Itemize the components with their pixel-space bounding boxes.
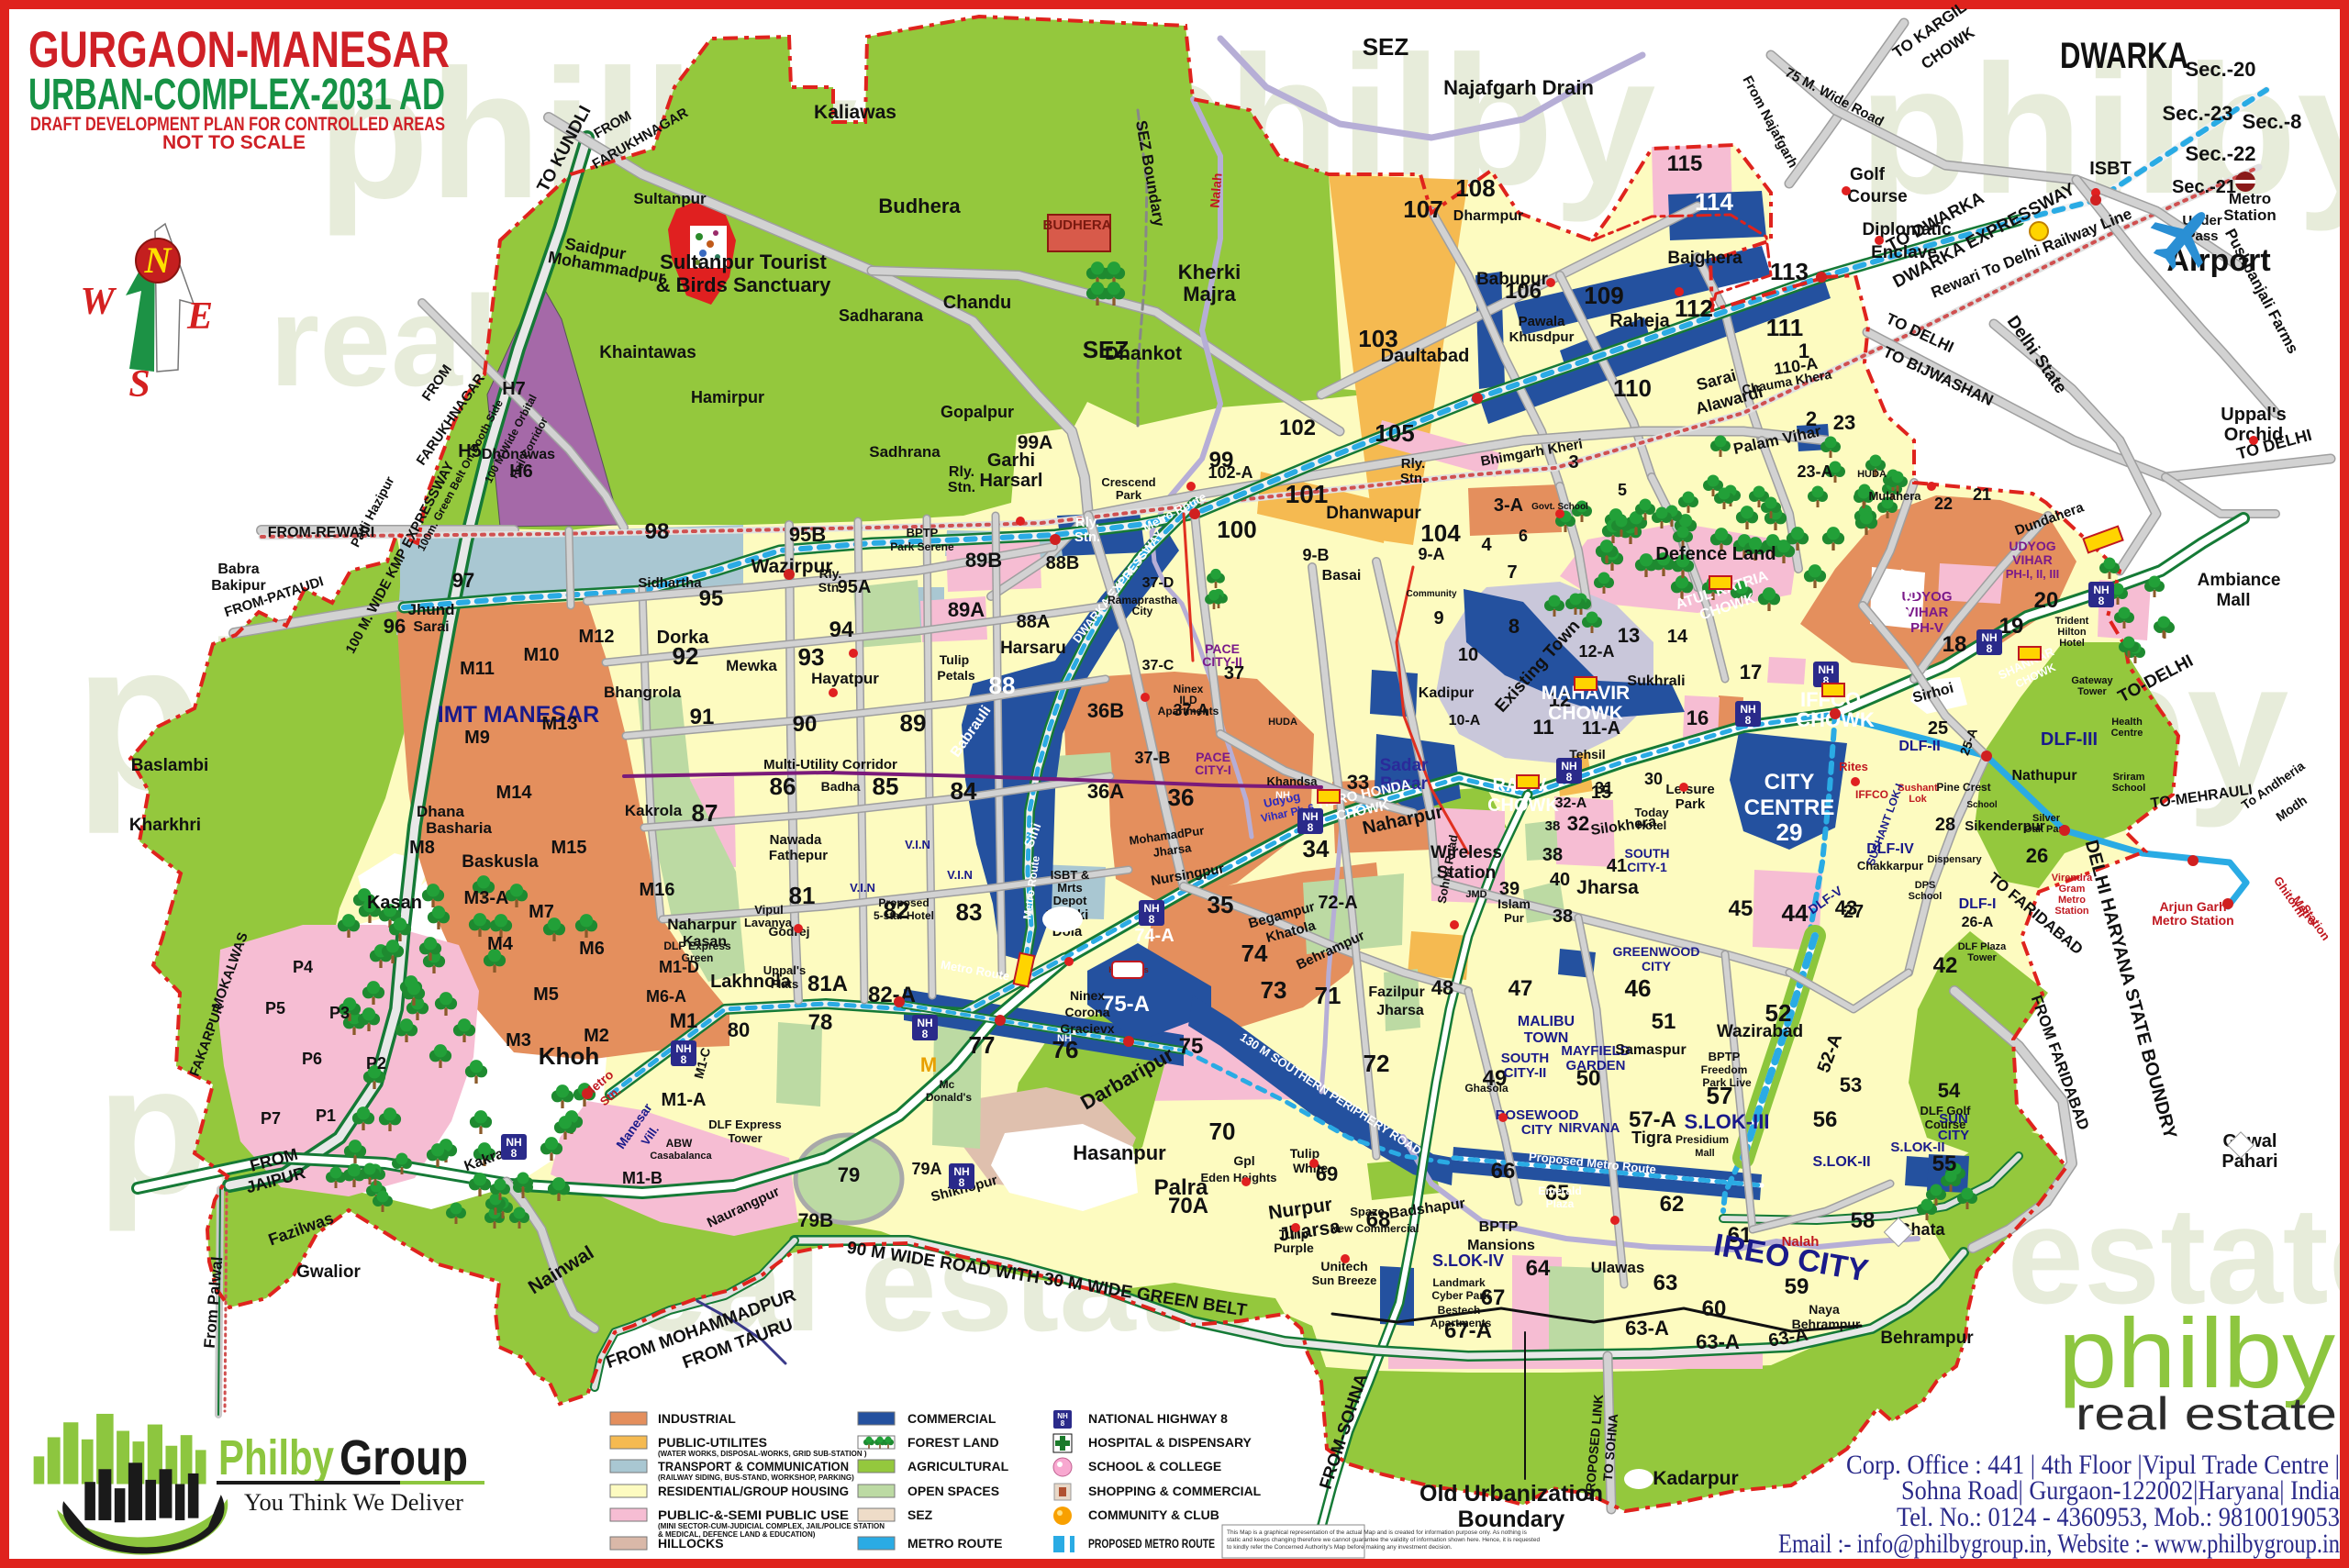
svg-text:SHOPPING & COMMERCIAL: SHOPPING & COMMERCIAL	[1088, 1484, 1262, 1498]
svg-text:58: 58	[1851, 1208, 1876, 1233]
svg-text:29: 29	[1776, 818, 1803, 846]
svg-text:CITY-1: CITY-1	[1627, 860, 1667, 874]
svg-text:M14: M14	[496, 783, 533, 803]
svg-text:57-A: 57-A	[1629, 1107, 1676, 1132]
svg-text:10: 10	[1458, 645, 1478, 665]
svg-text:1: 1	[1798, 339, 1809, 362]
svg-text:Plaza: Plaza	[1546, 1197, 1575, 1210]
svg-text:Sec.-21: Sec.-21	[2172, 177, 2236, 197]
svg-text:AGRICULTURAL: AGRICULTURAL	[907, 1459, 1009, 1473]
svg-text:Virendra: Virendra	[2052, 873, 2093, 884]
svg-text:You Think We Deliver: You Think We Deliver	[244, 1489, 463, 1516]
svg-text:51: 51	[1652, 1009, 1676, 1034]
svg-text:Multi-Utility Corridor: Multi-Utility Corridor	[763, 757, 897, 773]
svg-text:PROPOSED METRO ROUTE: PROPOSED METRO ROUTE	[1088, 1536, 1215, 1551]
svg-text:Old Urbanization: Old Urbanization	[1419, 1481, 1603, 1507]
svg-text:Raheja: Raheja	[1609, 311, 1670, 331]
svg-text:M8: M8	[409, 838, 435, 858]
svg-text:67-A: 67-A	[1444, 1318, 1492, 1343]
svg-text:6: 6	[1519, 527, 1528, 545]
svg-text:SEZ: SEZ	[1363, 33, 1409, 61]
svg-text:Leisure: Leisure	[1665, 782, 1714, 797]
svg-text:8: 8	[1061, 1419, 1065, 1428]
svg-text:real estate: real estate	[2076, 1388, 2337, 1440]
svg-text:Petals: Petals	[937, 668, 974, 683]
svg-text:Gateway: Gateway	[2071, 675, 2113, 686]
svg-text:HUDA: HUDA	[1268, 717, 1297, 728]
svg-text:31: 31	[1595, 779, 1613, 797]
svg-text:38: 38	[1553, 906, 1573, 927]
svg-text:42: 42	[1933, 953, 1958, 978]
svg-text:M3-A: M3-A	[464, 888, 509, 908]
svg-text:N: N	[144, 239, 173, 281]
svg-text:60: 60	[1702, 1296, 1727, 1321]
svg-text:8: 8	[959, 1176, 965, 1189]
svg-text:BPTP: BPTP	[1709, 1050, 1741, 1063]
svg-text:38: 38	[1545, 818, 1561, 834]
svg-text:46: 46	[1625, 974, 1652, 1002]
svg-text:84: 84	[951, 777, 977, 805]
svg-text:PUBLIC-UTILITES: PUBLIC-UTILITES	[658, 1435, 767, 1450]
svg-text:9-A: 9-A	[1418, 545, 1444, 563]
svg-text:Community: Community	[1407, 589, 1457, 599]
svg-text:NIRVANA: NIRVANA	[1559, 1120, 1620, 1136]
svg-text:85: 85	[873, 773, 899, 800]
svg-text:ABW: ABW	[666, 1137, 693, 1150]
svg-text:71: 71	[1315, 982, 1341, 1009]
svg-text:8: 8	[681, 1053, 687, 1066]
svg-text:37-D: 37-D	[1142, 575, 1174, 591]
svg-text:Harsarl: Harsarl	[980, 471, 1043, 491]
svg-text:INDUSTRIAL: INDUSTRIAL	[658, 1411, 736, 1426]
svg-text:Baskusla: Baskusla	[462, 852, 539, 872]
svg-text:Nawada: Nawada	[770, 832, 822, 848]
svg-text:M1: M1	[670, 1009, 698, 1032]
svg-text:55: 55	[1932, 1151, 1957, 1176]
svg-text:Gwalior: Gwalior	[296, 1262, 361, 1282]
svg-text:45: 45	[1729, 896, 1753, 921]
svg-text:30: 30	[1644, 770, 1663, 788]
svg-text:Badha: Badha	[821, 779, 861, 794]
svg-text:8: 8	[1508, 615, 1520, 638]
svg-text:8: 8	[1308, 821, 1314, 834]
svg-text:Depot: Depot	[1053, 894, 1088, 907]
svg-text:59: 59	[1785, 1274, 1809, 1299]
svg-text:M4: M4	[487, 934, 514, 954]
svg-text:NOT TO SCALE: NOT TO SCALE	[162, 132, 306, 153]
svg-text:16: 16	[1687, 706, 1709, 729]
svg-text:HUDA: HUDA	[1857, 469, 1887, 480]
svg-text:52: 52	[1765, 999, 1792, 1027]
svg-text:Landmark: Landmark	[1432, 1276, 1486, 1289]
svg-text:COMMUNITY & CLUB: COMMUNITY & CLUB	[1088, 1507, 1219, 1522]
svg-text:Station: Station	[2054, 906, 2089, 917]
svg-text:V.I.N: V.I.N	[905, 838, 930, 851]
svg-text:47: 47	[1508, 976, 1533, 1001]
svg-text:33: 33	[1347, 771, 1369, 794]
svg-text:M2: M2	[584, 1026, 609, 1046]
svg-text:19: 19	[1999, 614, 2024, 639]
svg-text:(MINI SECTOR-CUM-JUDICIAL COMP: (MINI SECTOR-CUM-JUDICIAL COMPLEX, JAIL/…	[658, 1522, 885, 1530]
svg-text:Golf: Golf	[1850, 165, 1886, 184]
svg-text:108: 108	[1455, 174, 1495, 202]
svg-text:Sukhrali: Sukhrali	[1627, 673, 1685, 689]
svg-text:8: 8	[1987, 642, 1993, 655]
svg-text:89B: 89B	[965, 549, 1002, 572]
svg-text:Dhana: Dhana	[417, 803, 465, 820]
svg-text:Wireless: Wireless	[1431, 843, 1502, 862]
svg-text:DLF Express: DLF Express	[708, 1118, 781, 1131]
svg-text:Ninex: Ninex	[1070, 988, 1105, 1003]
svg-text:Garhi: Garhi	[987, 450, 1035, 471]
svg-text:BUDHERA: BUDHERA	[1043, 217, 1112, 233]
svg-text:Sadhrana: Sadhrana	[869, 443, 941, 461]
svg-text:NH: NH	[1057, 1033, 1072, 1044]
svg-text:Rly.: Rly.	[1075, 515, 1099, 530]
svg-text:M1-B: M1-B	[622, 1169, 662, 1187]
svg-text:Stn.: Stn.	[818, 580, 842, 595]
svg-text:8: 8	[1745, 714, 1752, 727]
svg-text:Group: Group	[340, 1430, 468, 1485]
svg-text:Sriram: Sriram	[2113, 772, 2145, 783]
svg-text:SEZ: SEZ	[907, 1507, 933, 1522]
svg-text:Majra: Majra	[1183, 283, 1236, 306]
svg-text:Dispensary: Dispensary	[1927, 854, 1982, 865]
svg-text:98: 98	[645, 519, 670, 544]
svg-text:Tulip: Tulip	[1290, 1146, 1319, 1161]
svg-text:CITY: CITY	[1765, 770, 1815, 795]
svg-text:P3: P3	[329, 1004, 350, 1022]
svg-text:PH-I, II, III: PH-I, II, III	[2006, 567, 2060, 581]
svg-text:Rly.: Rly.	[819, 566, 842, 581]
svg-text:Park: Park	[1116, 488, 1142, 502]
svg-text:8: 8	[922, 1028, 929, 1040]
svg-text:Mall: Mall	[1695, 1148, 1714, 1159]
svg-text:Sadar: Sadar	[1380, 756, 1429, 775]
svg-text:Mewka: Mewka	[726, 657, 777, 674]
svg-text:68: 68	[1366, 1207, 1391, 1232]
svg-text:CITY-II: CITY-II	[1202, 654, 1242, 669]
svg-text:Course: Course	[1925, 1118, 1966, 1131]
svg-text:Tower: Tower	[2077, 686, 2107, 697]
svg-text:CITY: CITY	[1521, 1122, 1553, 1138]
svg-text:101: 101	[1286, 480, 1329, 508]
svg-text:Nalah: Nalah	[1207, 172, 1224, 208]
svg-text:P5: P5	[265, 999, 285, 1018]
svg-text:3: 3	[1568, 452, 1578, 473]
svg-text:28: 28	[1935, 815, 1955, 835]
svg-text:Bestech: Bestech	[1438, 1304, 1481, 1317]
svg-text:IFFCO: IFFCO	[1855, 788, 1888, 801]
svg-text:44: 44	[1782, 899, 1809, 927]
svg-text:8: 8	[1149, 913, 1155, 926]
svg-text:Pahari: Pahari	[2221, 1151, 2277, 1172]
svg-text:Tulip: Tulip	[940, 652, 969, 667]
svg-text:CENTRE: CENTRE	[1744, 795, 1835, 820]
svg-text:Ulawas: Ulawas	[1591, 1259, 1645, 1276]
svg-text:CITY: CITY	[1642, 959, 1672, 973]
svg-text:Kherki: Kherki	[1178, 261, 1241, 284]
svg-text:Stn.: Stn.	[1074, 529, 1100, 545]
svg-text:Hasanpur: Hasanpur	[1073, 1141, 1166, 1164]
svg-text:53: 53	[1840, 1073, 1862, 1096]
svg-text:20: 20	[2034, 588, 2059, 613]
svg-text:Silver: Silver	[2032, 813, 2061, 824]
svg-text:23: 23	[1833, 411, 1855, 434]
svg-text:RESIDENTIAL/GROUP HOUSING: RESIDENTIAL/GROUP HOUSING	[658, 1484, 849, 1498]
svg-text:BPTP: BPTP	[907, 526, 939, 539]
svg-text:Fathepur: Fathepur	[769, 848, 828, 863]
svg-text:27: 27	[1843, 902, 1864, 922]
svg-text:102-A: 102-A	[1208, 463, 1252, 482]
svg-text:8: 8	[511, 1147, 518, 1160]
svg-text:80: 80	[728, 1018, 750, 1041]
svg-text:COMMERCIAL: COMMERCIAL	[907, 1411, 996, 1426]
svg-text:110: 110	[1613, 374, 1652, 402]
svg-text:83: 83	[956, 898, 983, 926]
svg-text:S.LOK-II: S.LOK-II	[1812, 1154, 1870, 1170]
svg-text:METRO ROUTE: METRO ROUTE	[907, 1536, 1002, 1551]
svg-text:Kasan: Kasan	[683, 934, 727, 950]
svg-text:Tower: Tower	[1967, 952, 1997, 963]
svg-text:CITY-II: CITY-II	[1504, 1065, 1547, 1081]
svg-text:Kadarpur: Kadarpur	[1653, 1468, 1738, 1489]
svg-text:74: 74	[1241, 940, 1268, 967]
svg-text:Babupur: Babupur	[1476, 270, 1549, 289]
svg-text:Sultanpur Tourist: Sultanpur Tourist	[660, 250, 827, 273]
svg-text:50: 50	[1576, 1066, 1601, 1091]
svg-text:Apartments: Apartments	[1158, 705, 1219, 717]
svg-text:37-B: 37-B	[1134, 749, 1170, 767]
svg-text:P2: P2	[366, 1054, 386, 1073]
svg-text:UDYOG: UDYOG	[2009, 539, 2055, 553]
svg-text:79: 79	[838, 1163, 860, 1186]
svg-text:73: 73	[1261, 976, 1287, 1004]
svg-text:113: 113	[1770, 258, 1809, 285]
svg-text:21: 21	[1973, 485, 1991, 504]
svg-text:This Map is a graphical repres: This Map is a graphical representation o…	[1227, 1529, 1528, 1536]
svg-text:Nalah: Nalah	[1782, 1234, 1820, 1250]
svg-text:Presidium: Presidium	[1675, 1133, 1729, 1146]
svg-text:Pur: Pur	[1504, 911, 1524, 925]
svg-text:35: 35	[1208, 891, 1234, 918]
svg-text:36B: 36B	[1087, 699, 1124, 722]
svg-text:Boundary: Boundary	[1458, 1507, 1565, 1532]
svg-text:M12: M12	[579, 627, 615, 647]
svg-text:P7: P7	[261, 1109, 281, 1128]
svg-text:Emerald: Emerald	[1538, 1184, 1581, 1197]
svg-text:Hilton: Hilton	[2057, 627, 2086, 638]
svg-text:Khandsa: Khandsa	[1267, 774, 1319, 788]
svg-text:Jharsa: Jharsa	[1376, 1003, 1424, 1018]
svg-text:Bakipur: Bakipur	[211, 578, 266, 594]
svg-text:Rly.: Rly.	[1401, 456, 1425, 472]
svg-text:DLF-III: DLF-III	[2041, 729, 2098, 750]
svg-text:36: 36	[1168, 784, 1195, 811]
svg-text:56: 56	[1813, 1107, 1838, 1132]
svg-text:Sultanpur: Sultanpur	[633, 190, 707, 207]
svg-text:Khaintawas: Khaintawas	[599, 343, 696, 362]
svg-text:M3: M3	[506, 1030, 531, 1051]
svg-text:Crescend: Crescend	[1101, 475, 1155, 489]
svg-text:Lok: Lok	[1909, 794, 1927, 805]
svg-text:M13: M13	[542, 714, 578, 734]
svg-text:Freedom: Freedom	[1701, 1063, 1748, 1076]
svg-text:CHOWK: CHOWK	[1487, 795, 1559, 816]
svg-text:M1-A: M1-A	[662, 1090, 707, 1110]
svg-text:& Birds Sanctuary: & Birds Sanctuary	[656, 273, 831, 296]
svg-text:70: 70	[1209, 1118, 1236, 1145]
svg-text:JMD: JMD	[1465, 889, 1486, 900]
svg-text:114: 114	[1695, 188, 1733, 216]
svg-text:107: 107	[1403, 195, 1442, 223]
svg-text:Kaliawas: Kaliawas	[814, 102, 896, 123]
svg-text:M: M	[920, 1053, 937, 1076]
svg-text:Fazilpur: Fazilpur	[1368, 984, 1424, 1000]
svg-text:Sec.-22: Sec.-22	[2185, 142, 2255, 165]
svg-text:BPTP: BPTP	[1479, 1219, 1519, 1235]
svg-text:H6: H6	[509, 462, 533, 482]
svg-text:Casabalanca: Casabalanca	[650, 1151, 712, 1162]
svg-text:Eden Heights: Eden Heights	[1200, 1171, 1276, 1184]
svg-text:M10: M10	[524, 645, 560, 665]
svg-text:GURGAON-MANESAR: GURGAON-MANESAR	[28, 20, 450, 78]
svg-text:64: 64	[1526, 1256, 1551, 1281]
svg-text:SOUTH: SOUTH	[1501, 1051, 1550, 1066]
svg-text:Khusdpur: Khusdpur	[1509, 329, 1575, 345]
svg-text:Naharpur: Naharpur	[667, 916, 737, 933]
svg-text:Metro: Metro	[2058, 895, 2086, 906]
svg-text:112: 112	[1675, 295, 1713, 322]
svg-text:9-B: 9-B	[1302, 546, 1329, 564]
svg-text:93: 93	[798, 643, 825, 671]
svg-text:P4: P4	[293, 958, 313, 976]
svg-text:DLF Plaza: DLF Plaza	[1958, 941, 2007, 952]
svg-text:72: 72	[1364, 1050, 1390, 1077]
svg-text:P6: P6	[302, 1050, 322, 1068]
svg-text:12-A: 12-A	[1578, 642, 1614, 661]
svg-text:88A: 88A	[1017, 612, 1051, 632]
svg-text:Course: Course	[1847, 187, 1907, 206]
svg-text:Baslambi: Baslambi	[131, 756, 208, 775]
svg-text:Sec.-8: Sec.-8	[2243, 110, 2302, 133]
svg-text:Corona: Corona	[1065, 1005, 1110, 1019]
svg-text:Philby: Philby	[218, 1430, 334, 1485]
svg-text:Lakhnola: Lakhnola	[710, 972, 792, 992]
svg-text:Uppal's: Uppal's	[2221, 405, 2286, 425]
svg-text:96: 96	[384, 615, 406, 638]
svg-text:H5: H5	[458, 441, 482, 462]
svg-text:111: 111	[1766, 314, 1804, 341]
svg-text:E: E	[186, 295, 213, 338]
svg-text:91: 91	[690, 705, 715, 729]
svg-text:Islam: Islam	[1497, 896, 1531, 911]
svg-text:82: 82	[884, 896, 910, 924]
svg-text:88B: 88B	[1046, 553, 1080, 573]
svg-text:S.LOK-III: S.LOK-III	[1685, 1110, 1770, 1133]
svg-text:Rites: Rites	[1839, 760, 1868, 773]
svg-text:Mrts: Mrts	[1057, 881, 1082, 895]
svg-text:36A: 36A	[1087, 780, 1124, 803]
svg-text:Hayatpur: Hayatpur	[811, 670, 879, 687]
svg-text:Kakrola: Kakrola	[625, 802, 683, 819]
svg-text:Dhanwapur: Dhanwapur	[1326, 504, 1421, 523]
svg-text:Centre: Centre	[2111, 728, 2143, 739]
svg-text:Station: Station	[2223, 206, 2277, 224]
svg-text:City: City	[1132, 605, 1153, 617]
svg-text:Sec.-23: Sec.-23	[2162, 102, 2232, 125]
svg-text:8: 8	[2099, 595, 2105, 607]
svg-text:H7: H7	[502, 379, 526, 399]
svg-text:105: 105	[1375, 419, 1414, 447]
svg-text:Sadharana: Sadharana	[839, 306, 924, 325]
svg-text:S.LOK-IV: S.LOK-IV	[1432, 1251, 1504, 1270]
svg-text:63-A: 63-A	[1625, 1317, 1669, 1340]
svg-text:Pine Crest: Pine Crest	[1936, 781, 1990, 794]
svg-text:CHOWK: CHOWK	[1548, 703, 1623, 724]
svg-text:DLF Golf: DLF Golf	[1920, 1104, 1972, 1118]
svg-text:TRANSPORT & COMMUNICATION: TRANSPORT & COMMUNICATION	[658, 1459, 849, 1473]
svg-text:M7: M7	[529, 902, 554, 922]
svg-text:7: 7	[1507, 562, 1517, 583]
svg-text:Samaspur: Samaspur	[1615, 1042, 1686, 1058]
svg-text:Tower: Tower	[728, 1131, 762, 1145]
svg-text:79B: 79B	[798, 1210, 834, 1231]
svg-text:Budhera: Budhera	[878, 195, 961, 217]
svg-text:Basharia: Basharia	[426, 819, 492, 837]
svg-text:MALIBU: MALIBU	[1518, 1014, 1575, 1029]
svg-text:M15: M15	[551, 838, 587, 858]
svg-text:79A: 79A	[911, 1160, 941, 1178]
svg-text:Sec.-20: Sec.-20	[2185, 58, 2255, 81]
svg-text:100: 100	[1217, 516, 1256, 543]
svg-text:Khoh: Khoh	[539, 1042, 599, 1070]
svg-text:Gram: Gram	[2059, 884, 2086, 895]
svg-text:67: 67	[1481, 1285, 1506, 1310]
svg-text:Vipul: Vipul	[754, 903, 784, 917]
svg-text:Metro Station: Metro Station	[2152, 913, 2233, 928]
svg-text:SCHOOL & COLLEGE: SCHOOL & COLLEGE	[1088, 1459, 1221, 1473]
svg-text:static and keeps changing ther: static and keeps changing therefore we c…	[1227, 1537, 1540, 1543]
svg-text:& MEDICAL, DEFENCE LAND & EDUC: & MEDICAL, DEFENCE LAND & EDUCATION)	[658, 1530, 816, 1539]
svg-text:25: 25	[1928, 718, 1948, 739]
svg-text:Green: Green	[682, 951, 714, 964]
svg-text:FOREST LAND: FOREST LAND	[907, 1435, 999, 1450]
svg-text:63: 63	[1653, 1271, 1678, 1296]
svg-text:Park Live: Park Live	[1702, 1076, 1752, 1089]
svg-text:Stn.: Stn.	[948, 480, 975, 495]
svg-text:26: 26	[2026, 844, 2048, 867]
svg-text:M16: M16	[640, 880, 675, 900]
svg-text:DLF-II: DLF-II	[1898, 739, 1940, 754]
svg-text:Park Serene: Park Serene	[890, 540, 954, 553]
svg-text:81A: 81A	[807, 972, 848, 996]
svg-text:Basai: Basai	[1322, 568, 1362, 584]
svg-text:VIHAR: VIHAR	[2012, 552, 2053, 567]
svg-text:M9: M9	[464, 728, 490, 748]
svg-text:Pawala: Pawala	[1519, 314, 1566, 329]
svg-text:V.I.N: V.I.N	[947, 868, 973, 882]
svg-text:89A: 89A	[948, 598, 985, 621]
svg-text:S: S	[128, 363, 150, 406]
svg-text:95B: 95B	[789, 523, 826, 546]
svg-text:HOSPITAL & DISPENSARY: HOSPITAL & DISPENSARY	[1088, 1435, 1252, 1450]
svg-text:OPEN SPACES: OPEN SPACES	[907, 1484, 999, 1498]
svg-text:Sun Breeze: Sun Breeze	[1312, 1273, 1377, 1287]
svg-text:Lavanya: Lavanya	[744, 916, 793, 929]
svg-text:17: 17	[1740, 661, 1762, 684]
svg-text:40: 40	[1550, 870, 1570, 890]
